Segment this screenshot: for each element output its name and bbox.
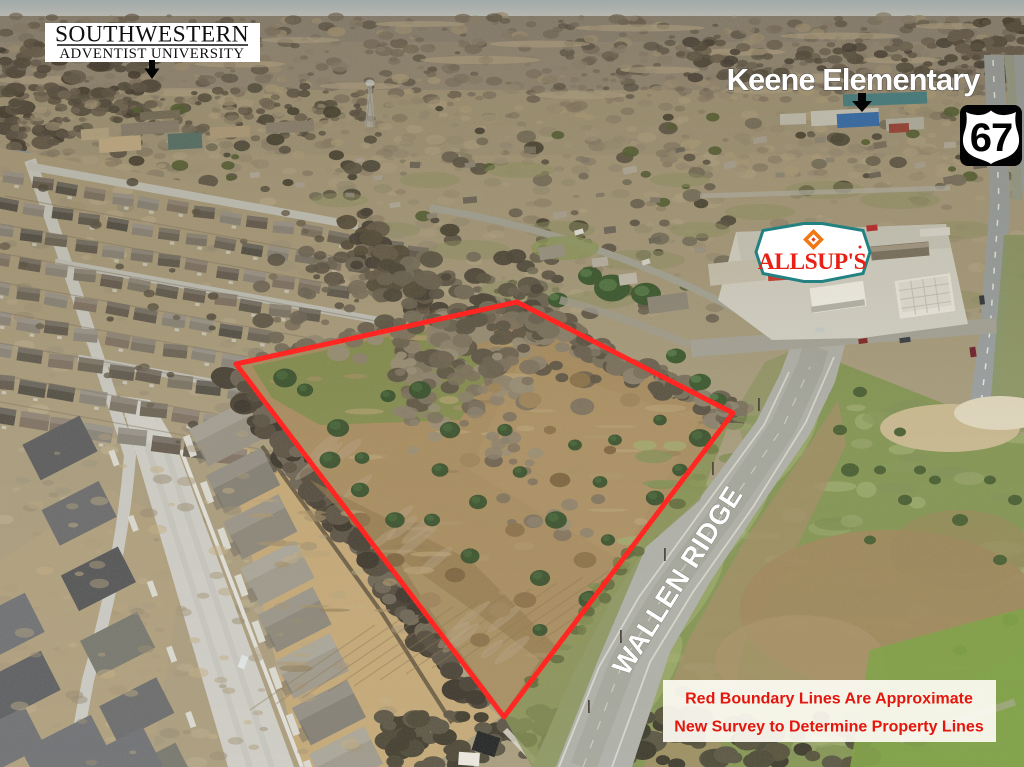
svg-text:67: 67 xyxy=(970,116,1013,160)
svg-text:ADVENTIST UNIVERSITY: ADVENTIST UNIVERSITY xyxy=(59,46,244,62)
svg-text:New Survey to Determine Proper: New Survey to Determine Property Lines xyxy=(674,719,984,736)
svg-text:SOUTHWESTERN: SOUTHWESTERN xyxy=(55,22,249,48)
svg-text:Keene Elementary: Keene Elementary xyxy=(727,62,982,97)
svg-text:Red Boundary Lines Are Approxi: Red Boundary Lines Are Approximate xyxy=(685,691,973,708)
svg-text:ALLSUP'S: ALLSUP'S xyxy=(758,249,867,275)
